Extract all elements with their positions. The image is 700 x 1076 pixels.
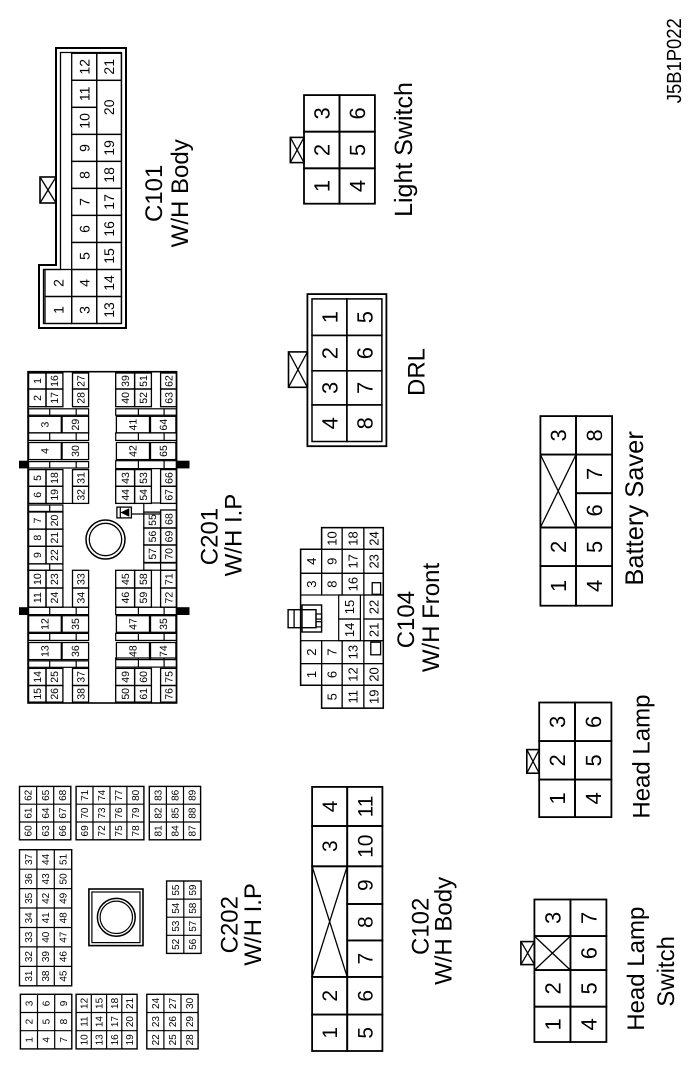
svg-text:56: 56 bbox=[188, 938, 199, 950]
svg-text:61: 61 bbox=[24, 807, 35, 819]
svg-text:W/H I.P: W/H I.P bbox=[221, 494, 248, 577]
svg-text:72: 72 bbox=[97, 825, 108, 837]
svg-text:17: 17 bbox=[110, 1016, 121, 1028]
svg-text:48: 48 bbox=[128, 645, 140, 657]
svg-text:14: 14 bbox=[101, 275, 117, 291]
svg-text:82: 82 bbox=[154, 807, 165, 819]
svg-text:11: 11 bbox=[32, 592, 44, 603]
svg-text:1: 1 bbox=[25, 1037, 36, 1043]
svg-text:1: 1 bbox=[546, 580, 571, 592]
svg-text:30: 30 bbox=[70, 445, 82, 457]
svg-text:2: 2 bbox=[319, 990, 342, 1002]
svg-text:3: 3 bbox=[76, 306, 92, 314]
svg-text:69: 69 bbox=[80, 825, 91, 837]
svg-text:1: 1 bbox=[310, 180, 335, 192]
svg-text:5: 5 bbox=[354, 1027, 377, 1039]
svg-text:17: 17 bbox=[49, 392, 61, 404]
svg-text:38: 38 bbox=[41, 970, 52, 982]
svg-text:41: 41 bbox=[41, 912, 52, 924]
svg-text:2: 2 bbox=[25, 1018, 36, 1024]
svg-text:38: 38 bbox=[75, 688, 87, 700]
svg-text:5: 5 bbox=[325, 693, 340, 700]
svg-text:16: 16 bbox=[110, 1034, 121, 1046]
svg-text:10: 10 bbox=[325, 531, 340, 545]
svg-text:9: 9 bbox=[76, 144, 92, 152]
svg-text:13: 13 bbox=[40, 645, 52, 657]
svg-text:3: 3 bbox=[546, 429, 571, 441]
svg-text:29: 29 bbox=[185, 1016, 196, 1028]
svg-text:2: 2 bbox=[32, 395, 44, 401]
svg-text:4: 4 bbox=[304, 558, 319, 565]
svg-text:7: 7 bbox=[59, 1037, 70, 1043]
svg-text:W/H Front: W/H Front bbox=[418, 563, 445, 673]
svg-text:78: 78 bbox=[131, 825, 142, 837]
svg-text:65: 65 bbox=[41, 789, 52, 801]
svg-text:35: 35 bbox=[70, 618, 82, 630]
svg-text:87: 87 bbox=[188, 825, 199, 837]
svg-text:W/H I.P: W/H I.P bbox=[240, 883, 267, 966]
svg-text:42: 42 bbox=[41, 892, 52, 904]
svg-text:56: 56 bbox=[147, 531, 159, 543]
svg-text:18: 18 bbox=[49, 472, 61, 484]
svg-text:15: 15 bbox=[342, 600, 357, 614]
svg-text:11: 11 bbox=[346, 690, 361, 704]
svg-text:12: 12 bbox=[40, 618, 52, 630]
svg-text:66: 66 bbox=[58, 825, 69, 837]
svg-text:6: 6 bbox=[581, 716, 606, 728]
svg-text:6: 6 bbox=[354, 990, 377, 1002]
svg-text:66: 66 bbox=[163, 472, 175, 484]
svg-text:86: 86 bbox=[171, 789, 182, 801]
svg-text:W/H Body: W/H Body bbox=[431, 877, 458, 985]
svg-text:C101: C101 bbox=[141, 165, 168, 222]
svg-text:3: 3 bbox=[545, 716, 570, 728]
svg-text:32: 32 bbox=[75, 489, 87, 501]
svg-text:19: 19 bbox=[125, 1034, 136, 1046]
svg-text:DRL: DRL bbox=[404, 348, 431, 396]
svg-text:81: 81 bbox=[154, 825, 165, 837]
svg-text:12: 12 bbox=[79, 997, 90, 1009]
svg-text:70: 70 bbox=[163, 548, 175, 560]
svg-text:24: 24 bbox=[151, 997, 162, 1009]
svg-text:75: 75 bbox=[114, 825, 125, 837]
svg-text:23: 23 bbox=[151, 1016, 162, 1028]
svg-text:48: 48 bbox=[59, 912, 70, 924]
svg-text:62: 62 bbox=[163, 375, 175, 387]
svg-text:35: 35 bbox=[24, 892, 35, 904]
svg-text:7: 7 bbox=[352, 382, 377, 394]
svg-text:5: 5 bbox=[582, 541, 607, 553]
svg-text:30: 30 bbox=[185, 997, 196, 1009]
svg-text:26: 26 bbox=[168, 1016, 179, 1028]
svg-text:Switch: Switch bbox=[653, 936, 680, 1007]
svg-text:5: 5 bbox=[42, 1018, 53, 1024]
svg-text:55: 55 bbox=[147, 514, 159, 526]
svg-text:20: 20 bbox=[366, 667, 381, 681]
svg-text:2: 2 bbox=[50, 279, 66, 287]
svg-text:45: 45 bbox=[120, 573, 132, 585]
svg-text:64: 64 bbox=[158, 419, 170, 431]
svg-text:8: 8 bbox=[325, 580, 340, 587]
svg-text:53: 53 bbox=[171, 920, 182, 932]
svg-text:33: 33 bbox=[75, 573, 87, 585]
svg-text:17: 17 bbox=[346, 554, 361, 568]
svg-text:44: 44 bbox=[120, 489, 132, 501]
svg-text:8: 8 bbox=[59, 1018, 70, 1024]
svg-text:67: 67 bbox=[58, 807, 69, 819]
svg-text:2: 2 bbox=[310, 144, 335, 156]
svg-text:19: 19 bbox=[101, 140, 117, 156]
svg-text:36: 36 bbox=[24, 873, 35, 885]
svg-text:5: 5 bbox=[352, 311, 377, 323]
svg-text:18: 18 bbox=[346, 531, 361, 545]
svg-text:69: 69 bbox=[163, 531, 175, 543]
svg-text:7: 7 bbox=[76, 198, 92, 206]
svg-text:37: 37 bbox=[75, 671, 87, 683]
svg-text:2: 2 bbox=[546, 541, 571, 553]
svg-text:51: 51 bbox=[59, 853, 70, 865]
svg-text:3: 3 bbox=[40, 422, 52, 428]
svg-text:89: 89 bbox=[188, 789, 199, 801]
svg-text:50: 50 bbox=[59, 873, 70, 885]
svg-text:23: 23 bbox=[49, 573, 61, 585]
svg-text:3: 3 bbox=[540, 912, 565, 924]
svg-text:40: 40 bbox=[120, 392, 132, 404]
svg-text:7: 7 bbox=[354, 953, 377, 965]
svg-text:5: 5 bbox=[32, 475, 44, 481]
svg-text:14: 14 bbox=[32, 671, 44, 683]
svg-text:12: 12 bbox=[346, 667, 361, 681]
svg-text:53: 53 bbox=[138, 472, 150, 484]
svg-text:6: 6 bbox=[42, 1000, 53, 1006]
svg-text:41: 41 bbox=[128, 419, 140, 431]
svg-text:27: 27 bbox=[75, 375, 87, 387]
svg-text:5: 5 bbox=[581, 754, 606, 766]
svg-text:9: 9 bbox=[59, 1000, 70, 1006]
svg-text:57: 57 bbox=[147, 548, 159, 560]
svg-text:67: 67 bbox=[163, 489, 175, 501]
svg-text:49: 49 bbox=[120, 671, 132, 683]
svg-text:44: 44 bbox=[41, 853, 52, 865]
svg-text:51: 51 bbox=[138, 375, 150, 387]
svg-text:54: 54 bbox=[171, 902, 182, 914]
svg-text:84: 84 bbox=[171, 825, 182, 837]
svg-text:15: 15 bbox=[32, 688, 44, 700]
svg-text:8: 8 bbox=[582, 429, 607, 441]
svg-text:6: 6 bbox=[76, 225, 92, 233]
svg-text:28: 28 bbox=[185, 1034, 196, 1046]
svg-text:46: 46 bbox=[59, 951, 70, 963]
svg-text:19: 19 bbox=[366, 689, 381, 703]
svg-text:65: 65 bbox=[158, 445, 170, 457]
svg-text:22: 22 bbox=[366, 600, 381, 614]
svg-text:11: 11 bbox=[76, 86, 92, 101]
svg-text:43: 43 bbox=[120, 472, 132, 484]
svg-text:52: 52 bbox=[138, 392, 150, 404]
svg-text:6: 6 bbox=[345, 107, 370, 119]
svg-text:4: 4 bbox=[576, 1018, 601, 1030]
svg-text:58: 58 bbox=[138, 573, 150, 585]
svg-text:21: 21 bbox=[101, 59, 117, 75]
svg-text:2: 2 bbox=[540, 982, 565, 994]
svg-text:23: 23 bbox=[366, 554, 381, 568]
svg-text:12: 12 bbox=[76, 59, 92, 75]
svg-text:3: 3 bbox=[25, 1000, 36, 1006]
svg-text:76: 76 bbox=[114, 807, 125, 819]
svg-text:5: 5 bbox=[345, 144, 370, 156]
svg-text:6: 6 bbox=[352, 347, 377, 359]
svg-text:6: 6 bbox=[32, 492, 44, 498]
svg-text:39: 39 bbox=[120, 375, 132, 387]
svg-text:8: 8 bbox=[32, 535, 44, 541]
svg-text:70: 70 bbox=[80, 807, 91, 819]
svg-text:19: 19 bbox=[49, 489, 61, 501]
svg-text:57: 57 bbox=[188, 920, 199, 932]
svg-text:4: 4 bbox=[581, 792, 606, 804]
svg-text:5: 5 bbox=[576, 982, 601, 994]
svg-text:21: 21 bbox=[125, 997, 136, 1009]
svg-text:22: 22 bbox=[151, 1034, 162, 1046]
svg-text:4: 4 bbox=[319, 800, 342, 812]
svg-text:68: 68 bbox=[58, 789, 69, 801]
svg-text:11: 11 bbox=[79, 1016, 90, 1027]
svg-text:18: 18 bbox=[110, 997, 121, 1009]
svg-text:3: 3 bbox=[304, 580, 319, 587]
svg-text:62: 62 bbox=[24, 789, 35, 801]
svg-text:60: 60 bbox=[24, 825, 35, 837]
svg-text:18: 18 bbox=[101, 167, 117, 183]
svg-text:88: 88 bbox=[188, 807, 199, 819]
svg-text:16: 16 bbox=[101, 221, 117, 237]
svg-text:20: 20 bbox=[101, 99, 117, 115]
svg-text:75: 75 bbox=[163, 671, 175, 683]
svg-text:74: 74 bbox=[97, 789, 108, 801]
svg-text:22: 22 bbox=[49, 549, 61, 561]
svg-text:37: 37 bbox=[24, 853, 35, 865]
svg-text:8: 8 bbox=[354, 916, 377, 928]
svg-text:10: 10 bbox=[354, 835, 377, 858]
svg-text:C104: C104 bbox=[393, 591, 420, 648]
svg-text:3: 3 bbox=[319, 840, 342, 852]
svg-text:J5B1P022: J5B1P022 bbox=[663, 18, 686, 103]
svg-text:1: 1 bbox=[50, 306, 66, 314]
svg-text:32: 32 bbox=[24, 951, 35, 963]
svg-text:3: 3 bbox=[317, 382, 342, 394]
svg-text:50: 50 bbox=[120, 688, 132, 700]
svg-text:29: 29 bbox=[70, 419, 82, 431]
svg-text:6: 6 bbox=[576, 947, 601, 959]
svg-text:31: 31 bbox=[24, 970, 35, 982]
svg-text:85: 85 bbox=[171, 807, 182, 819]
svg-text:25: 25 bbox=[49, 671, 61, 683]
svg-text:Head Lamp: Head Lamp bbox=[629, 695, 656, 819]
svg-text:15: 15 bbox=[101, 248, 117, 264]
svg-text:7: 7 bbox=[32, 517, 44, 523]
svg-text:6: 6 bbox=[325, 671, 340, 678]
svg-text:39: 39 bbox=[41, 951, 52, 963]
svg-text:34: 34 bbox=[75, 592, 87, 604]
svg-text:10: 10 bbox=[76, 113, 92, 129]
svg-text:73: 73 bbox=[97, 807, 108, 819]
svg-text:4: 4 bbox=[582, 580, 607, 592]
svg-text:21: 21 bbox=[366, 623, 381, 637]
svg-text:10: 10 bbox=[32, 573, 44, 585]
svg-text:61: 61 bbox=[138, 688, 150, 700]
svg-text:76: 76 bbox=[163, 688, 175, 700]
svg-text:64: 64 bbox=[41, 807, 52, 819]
svg-text:1: 1 bbox=[32, 378, 44, 384]
svg-text:35: 35 bbox=[158, 618, 170, 630]
svg-text:Battery Saver: Battery Saver bbox=[621, 431, 649, 586]
svg-text:24: 24 bbox=[366, 531, 381, 545]
svg-text:13: 13 bbox=[346, 645, 361, 659]
svg-text:7: 7 bbox=[325, 648, 340, 655]
svg-text:2: 2 bbox=[304, 648, 319, 655]
svg-text:45: 45 bbox=[59, 970, 70, 982]
svg-text:55: 55 bbox=[171, 884, 182, 896]
svg-text:8: 8 bbox=[352, 417, 377, 429]
svg-text:46: 46 bbox=[120, 592, 132, 604]
svg-text:14: 14 bbox=[95, 1016, 106, 1028]
svg-text:20: 20 bbox=[125, 1016, 136, 1028]
svg-text:14: 14 bbox=[342, 623, 357, 637]
svg-text:15: 15 bbox=[95, 997, 106, 1009]
svg-text:1: 1 bbox=[545, 792, 570, 804]
svg-text:7: 7 bbox=[576, 912, 601, 924]
svg-text:47: 47 bbox=[128, 618, 140, 630]
svg-text:4: 4 bbox=[317, 417, 342, 429]
svg-text:63: 63 bbox=[41, 825, 52, 837]
svg-text:4: 4 bbox=[76, 279, 92, 287]
svg-text:74: 74 bbox=[158, 645, 170, 657]
svg-text:79: 79 bbox=[131, 807, 142, 819]
svg-text:7: 7 bbox=[582, 468, 607, 480]
svg-text:24: 24 bbox=[49, 592, 61, 604]
svg-text:1: 1 bbox=[317, 311, 342, 323]
svg-text:60: 60 bbox=[138, 671, 150, 683]
svg-text:27: 27 bbox=[168, 997, 179, 1009]
svg-text:2: 2 bbox=[317, 347, 342, 359]
svg-text:33: 33 bbox=[24, 931, 35, 943]
svg-text:47: 47 bbox=[59, 931, 70, 943]
svg-text:5: 5 bbox=[76, 252, 92, 260]
svg-text:83: 83 bbox=[154, 789, 165, 801]
svg-text:4: 4 bbox=[42, 1037, 53, 1043]
svg-text:17: 17 bbox=[101, 194, 117, 210]
svg-text:9: 9 bbox=[354, 879, 377, 891]
svg-text:8: 8 bbox=[76, 171, 92, 179]
svg-text:71: 71 bbox=[80, 789, 91, 801]
svg-text:28: 28 bbox=[75, 392, 87, 404]
svg-text:77: 77 bbox=[114, 789, 125, 801]
svg-text:52: 52 bbox=[171, 938, 182, 950]
svg-text:63: 63 bbox=[163, 392, 175, 404]
svg-text:11: 11 bbox=[354, 795, 377, 817]
svg-text:49: 49 bbox=[59, 892, 70, 904]
svg-text:9: 9 bbox=[325, 558, 340, 565]
svg-text:W/H Body: W/H Body bbox=[167, 139, 194, 247]
svg-text:40: 40 bbox=[41, 931, 52, 943]
svg-text:43: 43 bbox=[41, 873, 52, 885]
svg-text:6: 6 bbox=[582, 504, 607, 516]
svg-text:13: 13 bbox=[101, 302, 117, 318]
svg-text:26: 26 bbox=[49, 688, 61, 700]
svg-text:Light Switch: Light Switch bbox=[390, 82, 418, 217]
svg-text:25: 25 bbox=[168, 1034, 179, 1046]
svg-text:68: 68 bbox=[163, 513, 175, 525]
svg-text:3: 3 bbox=[310, 107, 335, 119]
svg-text:71: 71 bbox=[163, 573, 175, 585]
svg-text:16: 16 bbox=[346, 577, 361, 591]
svg-text:13: 13 bbox=[95, 1034, 106, 1046]
svg-text:Head Lamp: Head Lamp bbox=[623, 907, 650, 1031]
svg-text:31: 31 bbox=[75, 472, 87, 484]
svg-text:C201: C201 bbox=[196, 508, 223, 565]
svg-text:1: 1 bbox=[319, 1027, 342, 1039]
svg-text:58: 58 bbox=[188, 902, 199, 914]
svg-text:1: 1 bbox=[540, 1018, 565, 1030]
svg-text:2: 2 bbox=[545, 754, 570, 766]
svg-text:21: 21 bbox=[49, 532, 61, 544]
svg-text:20: 20 bbox=[49, 515, 61, 527]
svg-text:72: 72 bbox=[163, 592, 175, 604]
svg-text:59: 59 bbox=[138, 592, 150, 604]
svg-text:16: 16 bbox=[49, 375, 61, 387]
svg-text:4: 4 bbox=[40, 448, 52, 454]
svg-text:80: 80 bbox=[131, 789, 142, 801]
svg-text:9: 9 bbox=[32, 552, 44, 558]
svg-text:59: 59 bbox=[188, 884, 199, 896]
svg-text:4: 4 bbox=[345, 180, 370, 192]
svg-text:36: 36 bbox=[70, 645, 82, 657]
svg-text:34: 34 bbox=[24, 912, 35, 924]
svg-text:54: 54 bbox=[138, 489, 150, 501]
svg-text:42: 42 bbox=[128, 445, 140, 457]
svg-text:10: 10 bbox=[79, 1034, 90, 1046]
svg-text:1: 1 bbox=[304, 671, 319, 678]
